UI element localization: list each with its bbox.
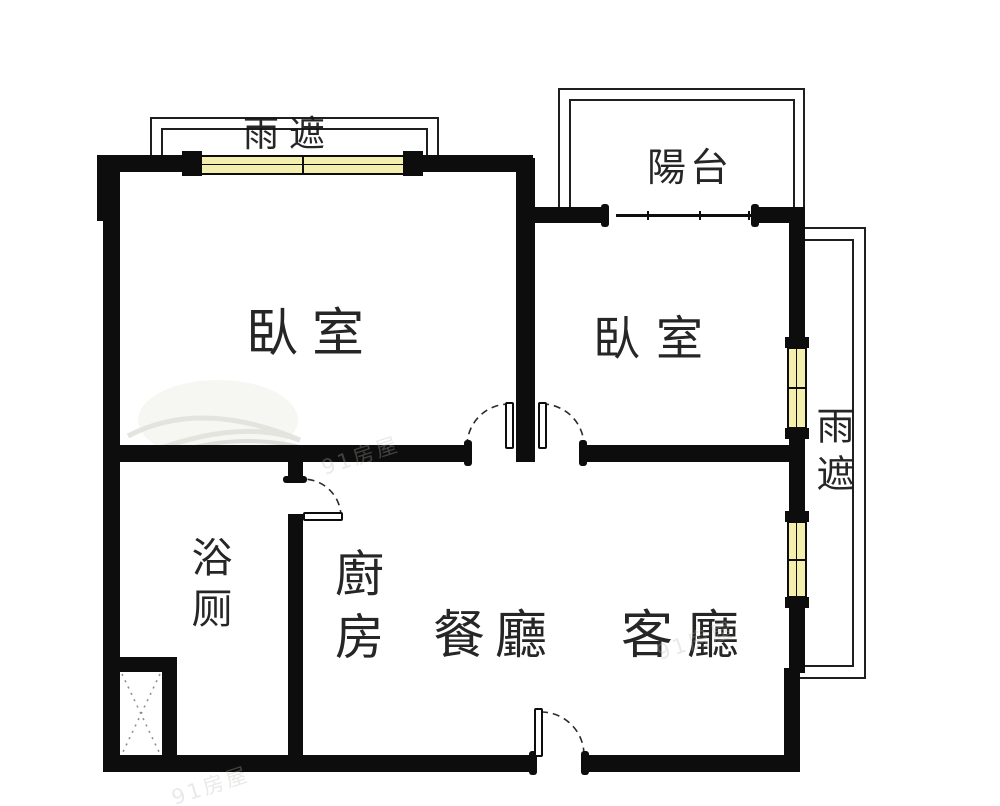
balcony-label: 陽台: [647, 137, 733, 193]
window-pane-line: [796, 522, 797, 597]
bedroom-left-label: 臥室: [246, 291, 378, 366]
wall-right-upper: [789, 207, 805, 338]
bathroom-door-leaf: [303, 512, 343, 521]
rain-shelter-right-label: 雨遮: [811, 406, 853, 502]
bathroom-label: 浴厕: [185, 536, 230, 638]
balcony-sliding-door-tick: [748, 211, 750, 220]
bedroom-right-door-jamb: [579, 440, 587, 466]
entry-door-arc: [541, 712, 584, 755]
bathroom-door-jamb: [283, 476, 307, 483]
window-cap: [403, 151, 423, 176]
bedroom-left-door-leaf: [505, 402, 514, 449]
entry-door-leaf: [534, 708, 543, 757]
wall-hall-right: [585, 445, 805, 462]
window-divider: [302, 156, 304, 174]
wall-balcony-bottom-left: [533, 207, 604, 223]
balcony-sliding-door: [616, 214, 754, 217]
window-divider: [788, 559, 806, 561]
shaft-wall-right: [162, 657, 177, 772]
window-bedroom-right: [787, 347, 807, 429]
window-bedroom-left: [200, 155, 405, 175]
bedroom-right-door-leaf: [538, 402, 547, 449]
window-divider: [788, 387, 806, 389]
balcony-sliding-door-tick: [699, 211, 701, 220]
wall-bottom-right: [583, 755, 800, 772]
bedroom-right-label: 臥室: [593, 300, 719, 369]
entry-door-jamb-right: [581, 751, 589, 775]
wall-bathroom-kitchen: [288, 514, 303, 755]
bedroom-left-door-arc: [467, 404, 509, 446]
wall-hall-left: [103, 445, 471, 462]
bedroom-right-door-arc: [542, 404, 584, 446]
wall-left: [103, 170, 120, 772]
window-living: [787, 521, 807, 598]
bedroom-left-door-jamb: [464, 440, 472, 466]
kitchen-label: 廚房: [328, 548, 383, 674]
window-cap: [182, 151, 202, 176]
balcony-sliding-door-tick: [647, 211, 649, 220]
wall-right-lower: [789, 607, 805, 673]
floor-plan: 雨遮 陽台 臥室 臥室 浴厕 廚房 餐廳 客廳 雨遮 91房屋 91房屋 91房…: [0, 0, 1000, 806]
dining-label: 餐廳: [433, 593, 557, 668]
balcony-door-jamb-left: [601, 204, 609, 227]
shaft-x: [122, 674, 160, 754]
window-pane-line: [796, 348, 797, 428]
rain-shelter-top-label: 雨遮: [243, 105, 335, 157]
wall-bedroom-divider: [516, 158, 535, 462]
